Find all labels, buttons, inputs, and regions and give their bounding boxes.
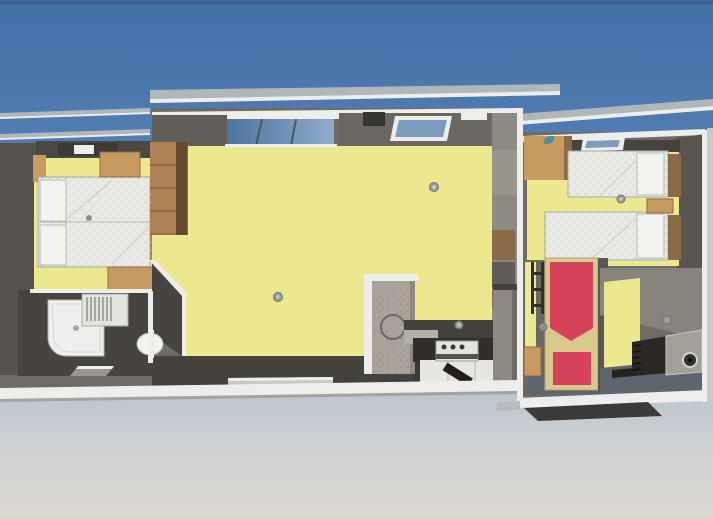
cooktop	[436, 341, 478, 361]
bedroom-skylight-frame	[74, 145, 94, 154]
ribbed-heater-unit	[632, 336, 668, 374]
bathroom-top-wall-edge	[30, 289, 152, 293]
tall-fridge-cabinet	[493, 284, 520, 388]
window-rail	[227, 112, 339, 119]
small-gray-step	[497, 401, 520, 411]
photo-top-edge	[0, 0, 713, 5]
bathroom	[18, 289, 163, 376]
floorplan-photo	[0, 0, 713, 519]
pillow	[637, 153, 664, 195]
ceiling-lamp	[617, 195, 625, 203]
module-divider-edge	[517, 108, 523, 402]
boiler-box	[666, 330, 702, 375]
nightstand-top	[100, 152, 140, 177]
twin-nightstand	[647, 199, 673, 213]
headboard	[668, 215, 681, 260]
right-module-right-edge	[702, 130, 707, 402]
double-bed	[38, 177, 150, 267]
ceiling-lamp	[274, 293, 283, 302]
ceiling-lamp	[455, 321, 463, 329]
living-window-sill	[225, 144, 337, 147]
bed-center-button	[86, 215, 92, 221]
pillow	[637, 214, 664, 258]
ceiling-lamp	[430, 183, 439, 192]
wall-lamp	[663, 316, 671, 324]
living-window-glass	[227, 119, 334, 146]
hall-wall-edge	[182, 292, 186, 356]
pillow-top	[40, 180, 66, 221]
partition-top-edge	[364, 274, 418, 281]
twin-bed-lower	[545, 212, 681, 260]
twin-bed-upper	[568, 151, 681, 197]
red-foot-panel	[553, 352, 591, 385]
floorplan-rendering	[0, 0, 713, 519]
pillow-bottom	[40, 225, 66, 265]
window-rail-right	[461, 113, 487, 120]
partition-left-edge	[364, 274, 372, 374]
ground-right-sliver	[707, 128, 713, 400]
twin-skylight	[581, 137, 625, 151]
small-wood-cabinet	[524, 347, 541, 376]
right-module	[497, 129, 707, 421]
shower-drain	[73, 325, 79, 331]
twin-bedroom	[524, 134, 681, 266]
headboard	[668, 154, 681, 197]
red-single-bed	[545, 258, 598, 390]
red-mattress	[550, 262, 593, 341]
wall-lamp	[539, 323, 547, 331]
left-module	[0, 108, 520, 402]
roof-hatch	[363, 112, 385, 126]
single-bedroom	[523, 258, 608, 396]
living-skylight-glass	[395, 120, 447, 137]
ribbed-washbasin-unit	[82, 294, 128, 326]
